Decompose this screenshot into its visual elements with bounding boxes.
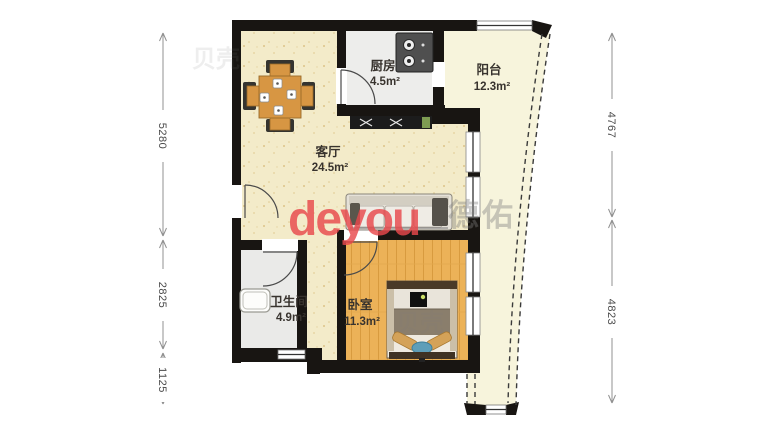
balcony-door-opening xyxy=(432,62,445,87)
tv-cabinet-icon xyxy=(350,116,432,129)
floor-plan-canvas: 客厅 24.5m² 厨房 4.5m² 阳台 12.3m² 卫生间 4.9m² 卧… xyxy=(0,0,780,438)
bedroom-left-wall xyxy=(337,230,346,360)
kitchen-area: 4.5m² xyxy=(370,76,400,88)
dim-left-1: 5280 xyxy=(156,123,168,149)
bathroom-label: 卫生间 xyxy=(270,294,308,309)
bathroom-area: 4.9m² xyxy=(276,312,306,324)
window-icon xyxy=(486,405,506,414)
dim-right-2: 4823 xyxy=(605,299,617,325)
living-room-area: 24.5m² xyxy=(312,162,349,174)
bedroom-area: 11.3m² xyxy=(344,316,380,328)
deyou-watermark-logo: deyou xyxy=(288,196,419,244)
bottom-wall xyxy=(312,360,478,373)
dim-left-3: 1125 xyxy=(156,367,168,393)
living-room-label: 客厅 xyxy=(314,144,341,159)
deyou-watermark-cjk: 德佑 xyxy=(448,200,516,231)
window-icon xyxy=(466,253,480,292)
faint-watermark: 贝壳 xyxy=(192,48,240,72)
bedroom-label: 卧室 xyxy=(347,297,373,312)
faint-watermark: 贝壳 xyxy=(396,312,444,336)
hallway-floor xyxy=(307,240,337,360)
dim-right-1: 4767 xyxy=(605,112,617,138)
balcony-label: 阳台 xyxy=(476,62,501,77)
balcony-area: 12.3m² xyxy=(474,81,511,93)
bathtub-icon xyxy=(240,289,270,312)
stove-icon xyxy=(396,33,433,72)
dim-left-2: 2825 xyxy=(156,282,168,308)
entry-opening xyxy=(231,185,242,218)
kitchen-label: 厨房 xyxy=(370,58,395,73)
window-icon xyxy=(278,350,305,359)
window-icon xyxy=(477,21,532,30)
window-icon xyxy=(466,132,480,172)
window-icon xyxy=(466,297,480,335)
balcony-bottom-left-wall xyxy=(464,403,486,415)
